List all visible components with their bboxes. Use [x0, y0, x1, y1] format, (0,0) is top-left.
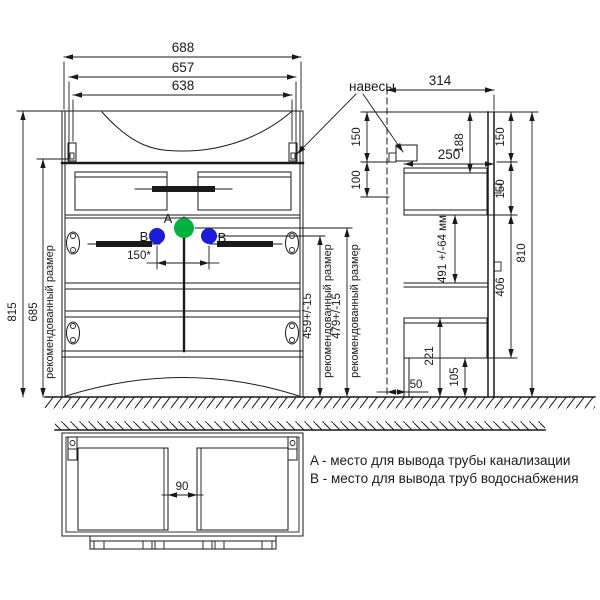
recommended-size-label: рекомендованный размер [349, 244, 361, 378]
drawer-handle [152, 186, 215, 192]
dim-638-label: 638 [172, 78, 195, 93]
dim-459-label: 459+/-15 [302, 293, 314, 339]
dim-810-label: 810 [516, 243, 528, 262]
dim-479-label: 479+/-15 [331, 293, 343, 339]
dim-685-label: 685 [28, 302, 40, 321]
dim-815-label: 815 [7, 302, 19, 321]
dim-150-star-label: 150* [127, 250, 151, 262]
point-b-right-label: B [218, 230, 227, 245]
point-a-label: A [164, 211, 173, 226]
dim-406-label: 406 [495, 277, 507, 296]
technical-drawing-page: A B B 688 657 638 815 [0, 0, 600, 600]
legend-line-b: B - место для вывода труб водоснабжения [310, 471, 579, 486]
dim-150-left-label: 150 [351, 127, 363, 146]
dim-657-label: 657 [172, 60, 195, 75]
dim-491-label: 491 +/-64 мм [437, 215, 449, 283]
wall [55, 422, 545, 431]
dim-100-label: 100 [351, 170, 363, 189]
floor [45, 397, 595, 409]
dim-50-label: 50 [410, 379, 423, 391]
legend-line-a: A - место для вывода трубы канализации [310, 453, 570, 468]
point-b-left-label: B [140, 229, 149, 244]
dim-150-right-top-label: 150 [495, 127, 507, 146]
dim-105-label: 105 [449, 367, 461, 386]
dim-314-label: 314 [429, 73, 452, 88]
point-b-left-marker [149, 228, 165, 244]
vanity-technical-drawing: A B B 688 657 638 815 [0, 0, 600, 600]
dim-150-right-mid-label: 150 [495, 179, 507, 198]
dim-250-label: 250 [438, 147, 461, 162]
dim-688-label: 688 [172, 40, 195, 55]
hangers-label: навесы [349, 79, 395, 94]
recommended-size-label: рекомендованный размер [44, 245, 56, 379]
dim-90-label: 90 [176, 481, 189, 493]
point-a-marker [174, 218, 194, 238]
dim-221-label: 221 [424, 346, 436, 365]
point-b-right-marker [201, 228, 217, 244]
